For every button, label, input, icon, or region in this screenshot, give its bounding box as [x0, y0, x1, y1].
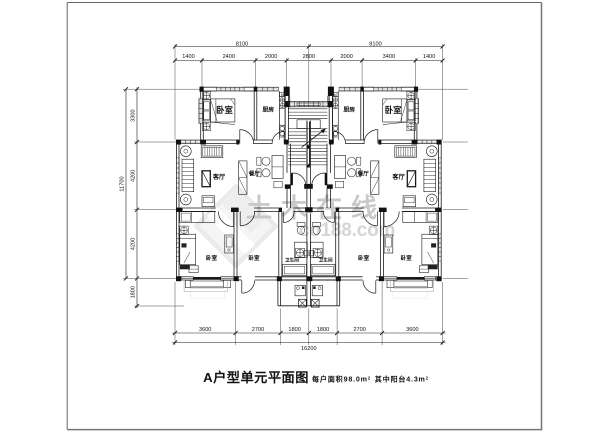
- svg-text:卫生间: 卫生间: [319, 256, 333, 263]
- svg-text:1800: 1800: [288, 327, 300, 333]
- svg-text:1400: 1400: [182, 54, 194, 60]
- svg-text:16200: 16200: [301, 346, 317, 352]
- svg-text:11700: 11700: [120, 176, 126, 191]
- svg-text:餐厅: 餐厅: [248, 170, 261, 178]
- svg-text:卧室: 卧室: [206, 254, 218, 262]
- svg-text:4200: 4200: [131, 238, 137, 250]
- svg-text:8100: 8100: [369, 41, 381, 47]
- svg-text:3400: 3400: [383, 54, 395, 60]
- svg-text:M: M: [334, 93, 337, 97]
- svg-text:3600: 3600: [406, 327, 418, 333]
- svg-text:卧室: 卧室: [400, 254, 412, 262]
- svg-text:A户型单元平面图: A户型单元平面图: [203, 369, 309, 385]
- svg-text:1800: 1800: [131, 286, 137, 298]
- svg-text:2000: 2000: [340, 54, 352, 60]
- svg-text:2700: 2700: [252, 327, 264, 333]
- svg-text:8100: 8100: [236, 41, 248, 47]
- svg-text:2000: 2000: [265, 54, 277, 60]
- svg-text:1800: 1800: [317, 327, 329, 333]
- svg-text:卧室: 卧室: [385, 105, 402, 115]
- svg-text:厨房: 厨房: [343, 106, 355, 114]
- svg-text:客厅: 客厅: [391, 173, 405, 181]
- svg-text:M: M: [281, 93, 284, 97]
- svg-text:卧室: 卧室: [216, 105, 233, 115]
- svg-text:餐厅: 餐厅: [357, 170, 370, 178]
- svg-text:3600: 3600: [199, 327, 211, 333]
- svg-text:1400: 1400: [423, 54, 435, 60]
- svg-text:2700: 2700: [353, 327, 365, 333]
- svg-text:卧室: 卧室: [248, 254, 260, 262]
- svg-text:厨房: 厨房: [262, 106, 274, 114]
- svg-text:2400: 2400: [223, 54, 235, 60]
- svg-text:卫生间: 卫生间: [285, 256, 299, 263]
- svg-text:卧室: 卧室: [358, 254, 370, 262]
- svg-text:客厅: 客厅: [212, 173, 226, 181]
- svg-text:4200: 4200: [131, 170, 137, 182]
- svg-text:3300: 3300: [131, 109, 137, 121]
